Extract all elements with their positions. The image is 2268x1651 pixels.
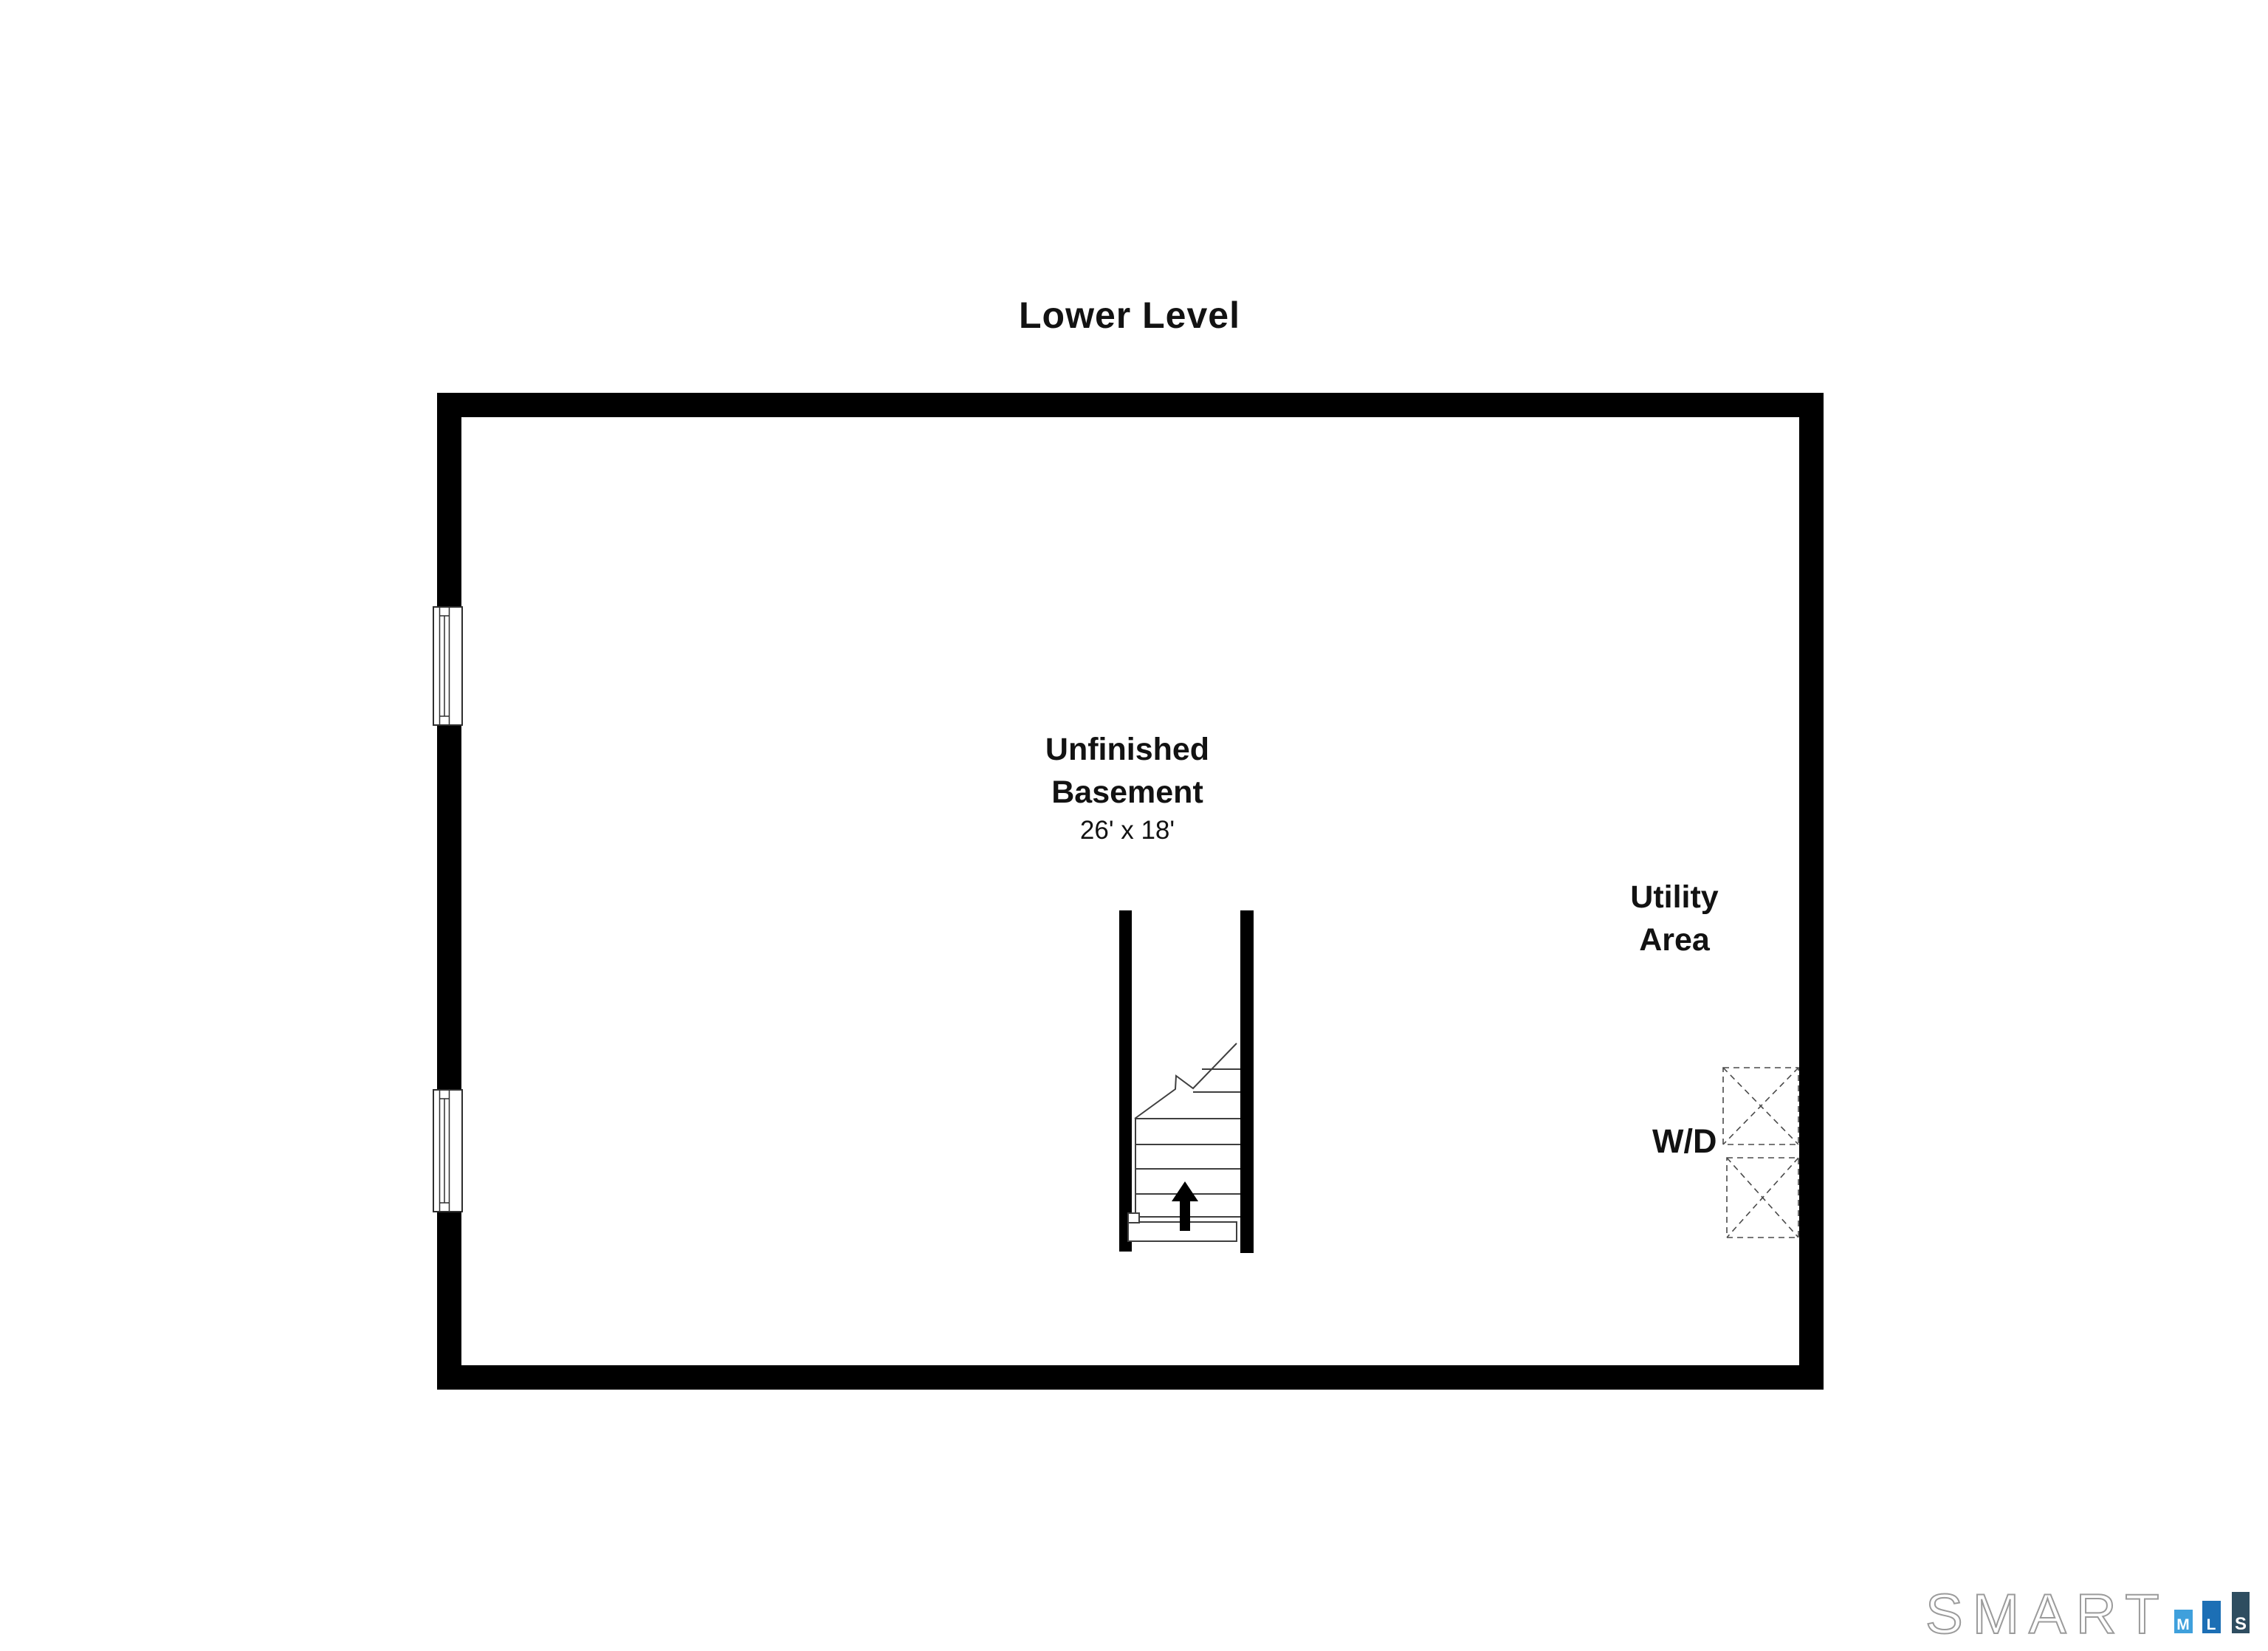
stair-break-line bbox=[1135, 1043, 1237, 1119]
logo-letter-s: S bbox=[2235, 1614, 2247, 1634]
floor-plan-page: Lower Level bbox=[0, 0, 2268, 1651]
window-icon bbox=[433, 606, 463, 726]
room-name: Area bbox=[1527, 919, 1822, 961]
page-title: Lower Level bbox=[834, 294, 1425, 337]
stair-wall-right bbox=[1240, 910, 1254, 1253]
staircase bbox=[1119, 910, 1254, 1253]
room-label-utility: Utility Area bbox=[1527, 876, 1822, 961]
window-icon bbox=[433, 1089, 463, 1212]
room-name: Basement bbox=[943, 771, 1312, 814]
newel-post bbox=[1128, 1213, 1139, 1223]
washer-dryer-label: W/D bbox=[1652, 1122, 1733, 1161]
logo-wordmark: SMART bbox=[1925, 1583, 2169, 1646]
room-dimensions: 26' x 18' bbox=[943, 814, 1312, 848]
smart-mls-logo: SMART M L S bbox=[1920, 1573, 2259, 1647]
logo-letter-l: L bbox=[2207, 1616, 2216, 1633]
room-name: Unfinished bbox=[943, 728, 1312, 771]
stair-wall-left bbox=[1119, 910, 1132, 1252]
room-name: Utility bbox=[1527, 876, 1822, 919]
room-label-basement: Unfinished Basement 26' x 18' bbox=[943, 728, 1312, 848]
logo-letter-m: M bbox=[2176, 1616, 2190, 1633]
washer-dryer-icon bbox=[1722, 1067, 1799, 1238]
